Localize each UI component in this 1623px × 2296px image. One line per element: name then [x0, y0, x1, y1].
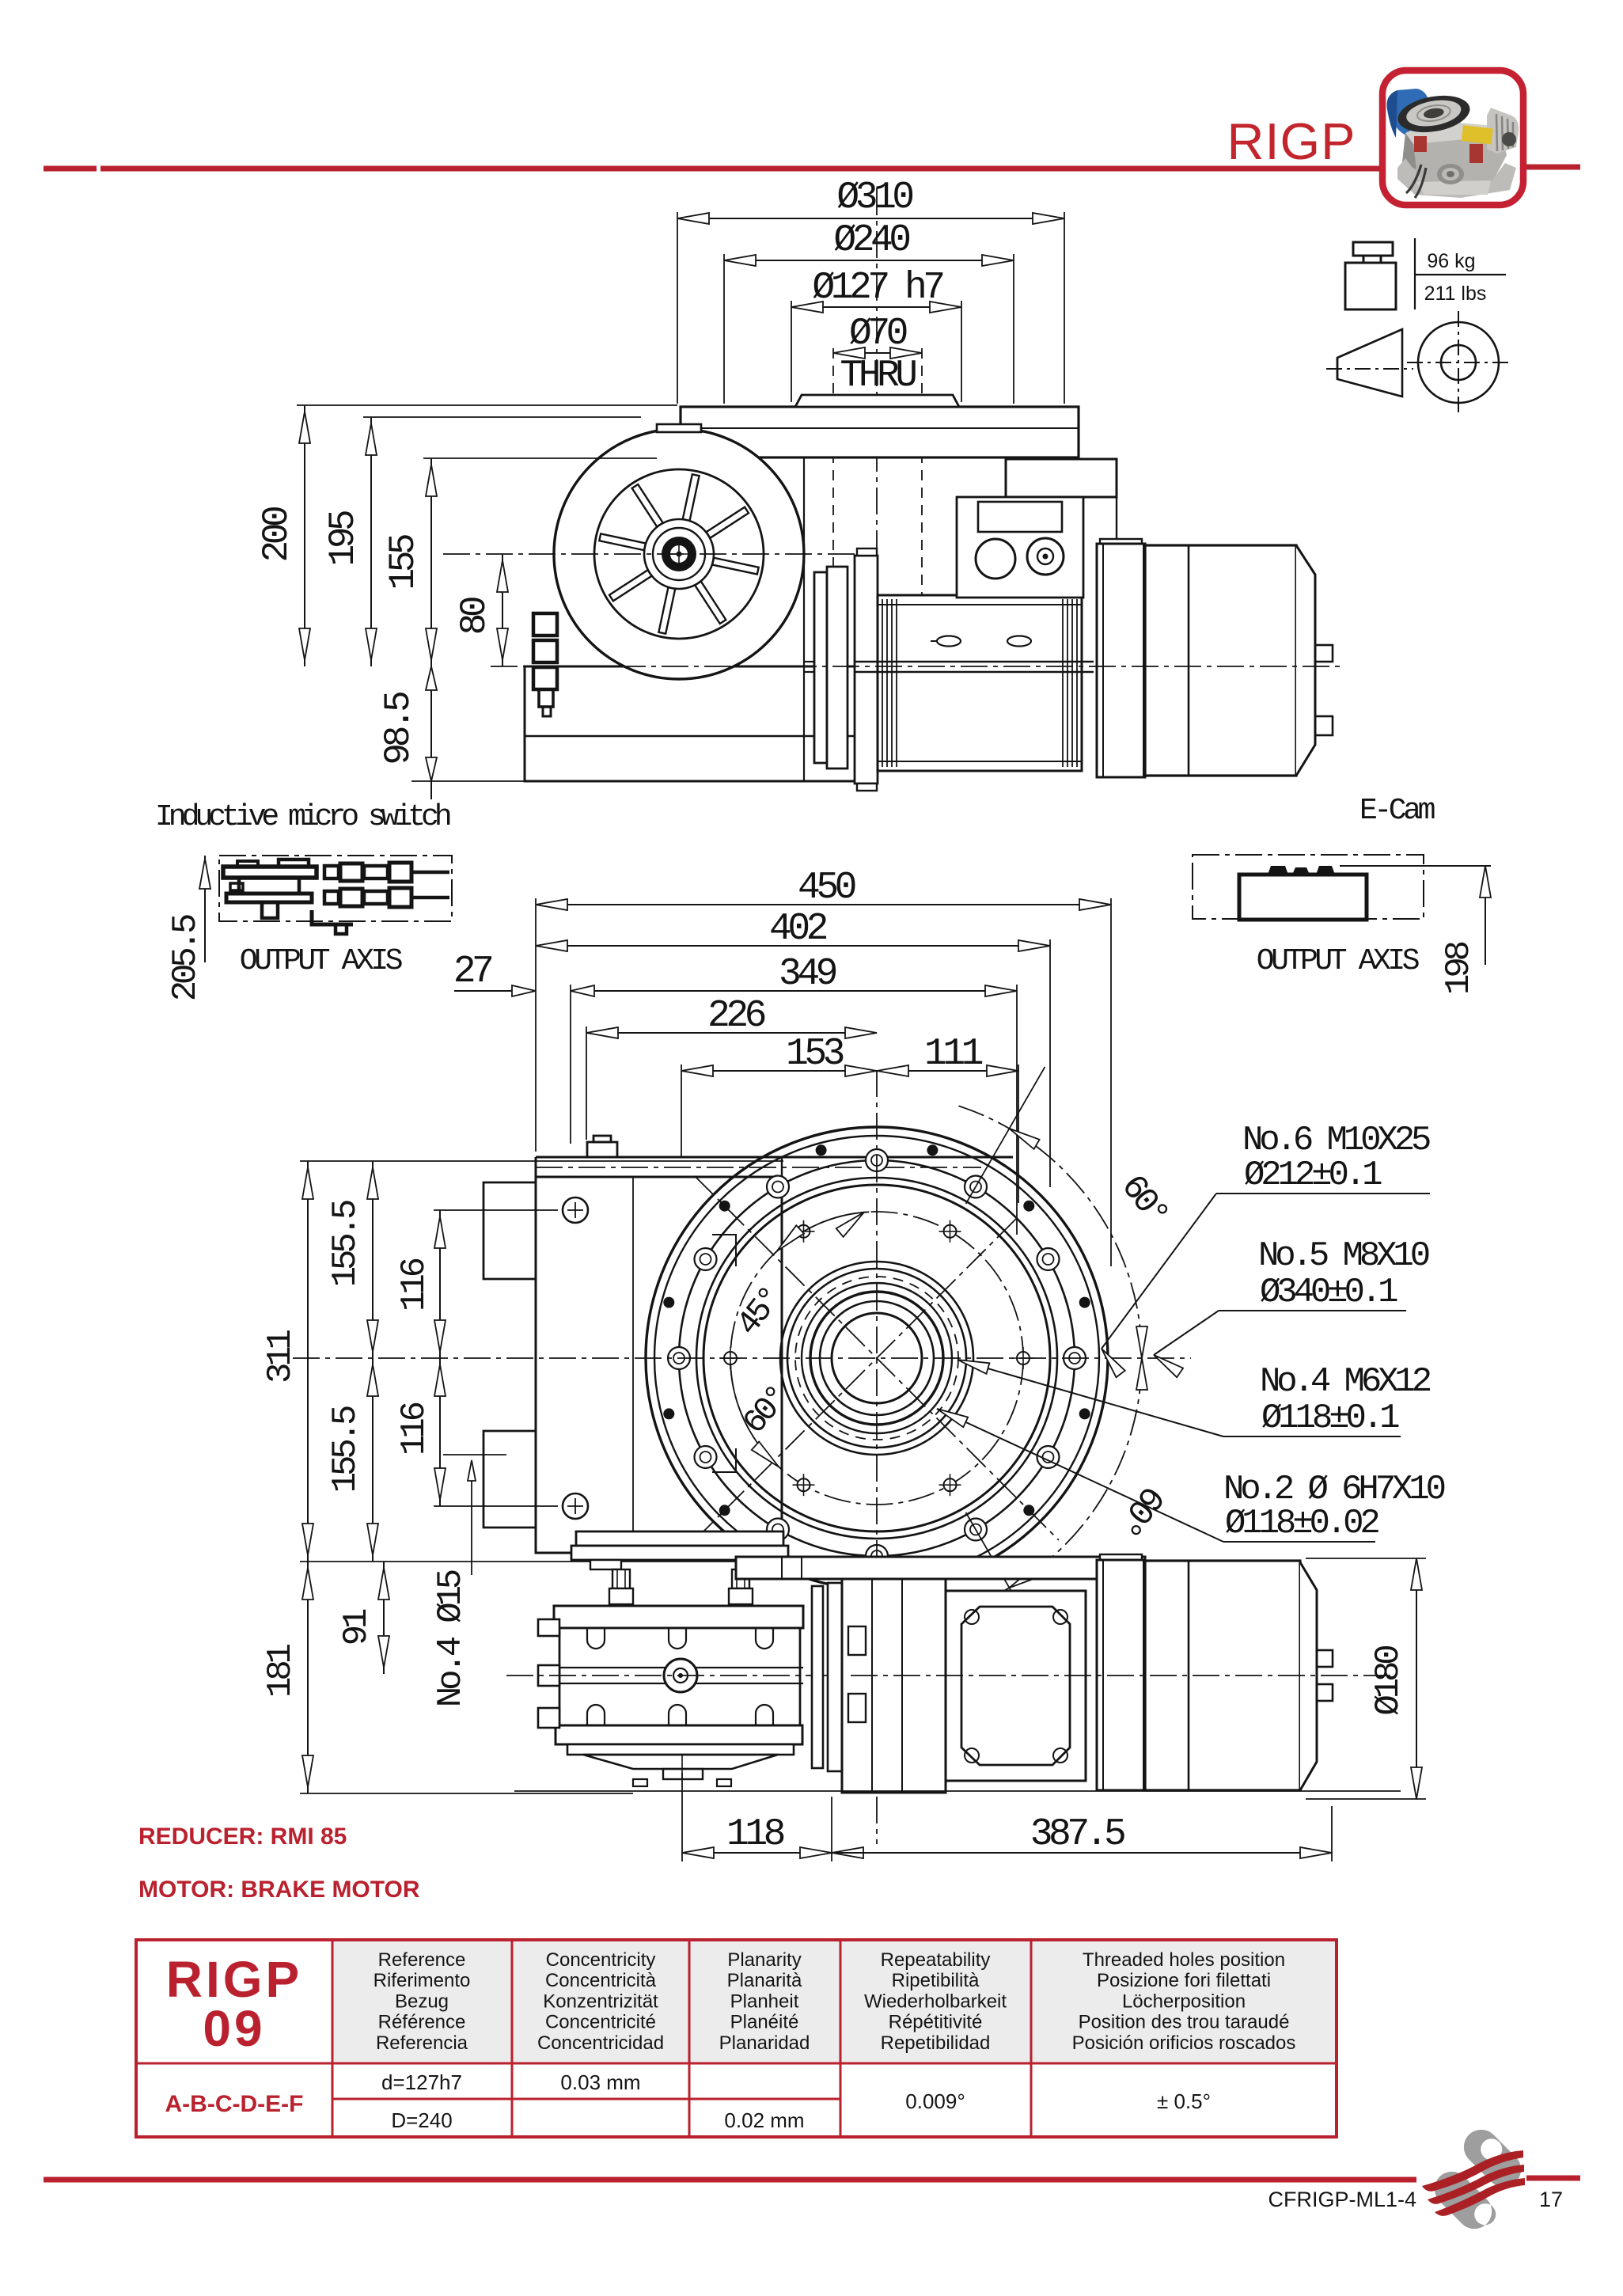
svg-text:198: 198	[1439, 942, 1479, 995]
svg-text:RIGP: RIGP	[1227, 112, 1356, 170]
svg-text:155: 155	[383, 535, 424, 590]
svg-text:Posizione fori filettati: Posizione fori filettati	[1097, 1970, 1271, 1991]
svg-text:Repeatability: Repeatability	[881, 1949, 991, 1971]
svg-text:Ø240: Ø240	[833, 219, 909, 262]
svg-text:Position des trou taraudé: Position des trou taraudé	[1079, 2012, 1290, 2033]
svg-text:Concentricity: Concentricity	[546, 1949, 656, 1971]
svg-text:Ø310: Ø310	[836, 176, 912, 219]
svg-text:Concentricité: Concentricité	[545, 2012, 656, 2033]
svg-text:96 kg: 96 kg	[1427, 250, 1475, 272]
svg-text:Planéité: Planéité	[730, 2012, 799, 2033]
svg-text:MOTOR: BRAKE MOTOR: MOTOR: BRAKE MOTOR	[138, 1877, 420, 1903]
svg-text:Konzentrizität: Konzentrizität	[543, 1990, 658, 2012]
svg-text:No.4 M6X12: No.4 M6X12	[1260, 1362, 1431, 1402]
svg-text:116: 116	[395, 1402, 434, 1455]
svg-text:Concentricidad: Concentricidad	[537, 2032, 664, 2054]
svg-text:OUTPUT AXIS: OUTPUT AXIS	[1257, 944, 1419, 978]
svg-text:155.5: 155.5	[326, 1406, 366, 1493]
svg-text:311: 311	[261, 1330, 301, 1383]
svg-text:No.5 M8X10: No.5 M8X10	[1258, 1236, 1429, 1276]
svg-text:No.4 Ø15: No.4 Ø15	[431, 1570, 471, 1707]
svg-text:CFRIGP-ML1-4: CFRIGP-ML1-4	[1268, 2188, 1416, 2211]
svg-text:Repetibilidad: Repetibilidad	[881, 2032, 991, 2054]
svg-text:91: 91	[337, 1609, 377, 1645]
svg-text:211 lbs: 211 lbs	[1424, 283, 1487, 305]
svg-text:17: 17	[1539, 2188, 1563, 2211]
svg-text:OUTPUT AXIS: OUTPUT AXIS	[240, 944, 402, 978]
svg-text:116: 116	[395, 1258, 434, 1311]
svg-text:Ø212±0.1: Ø212±0.1	[1244, 1156, 1382, 1195]
svg-text:Répétitivité: Répétitivité	[889, 2012, 983, 2033]
svg-text:111: 111	[924, 1033, 983, 1076]
svg-text:No.6 M10X25: No.6 M10X25	[1242, 1121, 1430, 1160]
svg-text:0.02 mm: 0.02 mm	[724, 2108, 804, 2132]
svg-text:d=127h7: d=127h7	[381, 2070, 462, 2094]
svg-text:Planaridad: Planaridad	[719, 2032, 810, 2054]
svg-text:Threaded holes position: Threaded holes position	[1083, 1949, 1285, 1971]
svg-text:Ø180: Ø180	[1369, 1646, 1409, 1716]
svg-text:118: 118	[726, 1813, 784, 1856]
svg-text:± 0.5°: ± 0.5°	[1157, 2089, 1211, 2113]
svg-text:Löcherposition: Löcherposition	[1122, 1990, 1246, 2012]
svg-text:Ø118±0.1: Ø118±0.1	[1261, 1398, 1399, 1438]
svg-text:402: 402	[769, 908, 827, 951]
svg-text:D=240: D=240	[391, 2108, 452, 2132]
svg-text:REDUCER: RMI 85: REDUCER: RMI 85	[138, 1824, 347, 1850]
svg-text:450: 450	[798, 867, 855, 909]
svg-text:181: 181	[261, 1644, 301, 1698]
svg-text:Reference: Reference	[378, 1949, 466, 1971]
svg-text:Ø127 h7: Ø127 h7	[812, 267, 943, 309]
svg-text:Planarità: Planarità	[727, 1970, 802, 1991]
svg-text:09: 09	[203, 2000, 265, 2057]
svg-text:E-Cam: E-Cam	[1359, 794, 1435, 828]
svg-text:200: 200	[256, 507, 298, 563]
svg-text:Bezug: Bezug	[395, 1990, 449, 2012]
svg-text:349: 349	[779, 953, 836, 996]
svg-text:Planheit: Planheit	[730, 1990, 799, 2012]
svg-text:205.5: 205.5	[166, 915, 206, 1001]
svg-text:Posición orificios roscados: Posición orificios roscados	[1072, 2032, 1296, 2054]
svg-text:27: 27	[453, 951, 492, 993]
svg-text:195: 195	[323, 511, 364, 567]
svg-text:THRU: THRU	[840, 355, 916, 397]
svg-text:Référence: Référence	[378, 2012, 466, 2033]
svg-text:Concentricità: Concentricità	[545, 1970, 657, 1991]
svg-text:A-B-C-D-E-F: A-B-C-D-E-F	[165, 2091, 304, 2117]
svg-text:Referencia: Referencia	[376, 2032, 468, 2054]
svg-text:387.5: 387.5	[1030, 1813, 1124, 1856]
svg-text:Planarity: Planarity	[727, 1949, 801, 1971]
svg-text:98.5: 98.5	[378, 693, 419, 765]
svg-text:226: 226	[707, 995, 765, 1038]
svg-text:153: 153	[786, 1033, 844, 1076]
svg-text:Wiederholbarkeit: Wiederholbarkeit	[864, 1990, 1007, 2012]
svg-text:0.03 mm: 0.03 mm	[560, 2070, 640, 2094]
svg-text:Ø340±0.1: Ø340±0.1	[1260, 1273, 1397, 1312]
svg-text:Ripetibilità: Ripetibilità	[892, 1970, 980, 1991]
svg-text:0.009°: 0.009°	[905, 2089, 965, 2113]
svg-text:Riferimento: Riferimento	[374, 1970, 471, 1991]
svg-text:80: 80	[454, 598, 495, 635]
svg-text:Inductive micro switch: Inductive micro switch	[155, 800, 450, 834]
svg-text:155.5: 155.5	[326, 1201, 366, 1287]
svg-text:Ø118±0.02: Ø118±0.02	[1225, 1504, 1378, 1543]
